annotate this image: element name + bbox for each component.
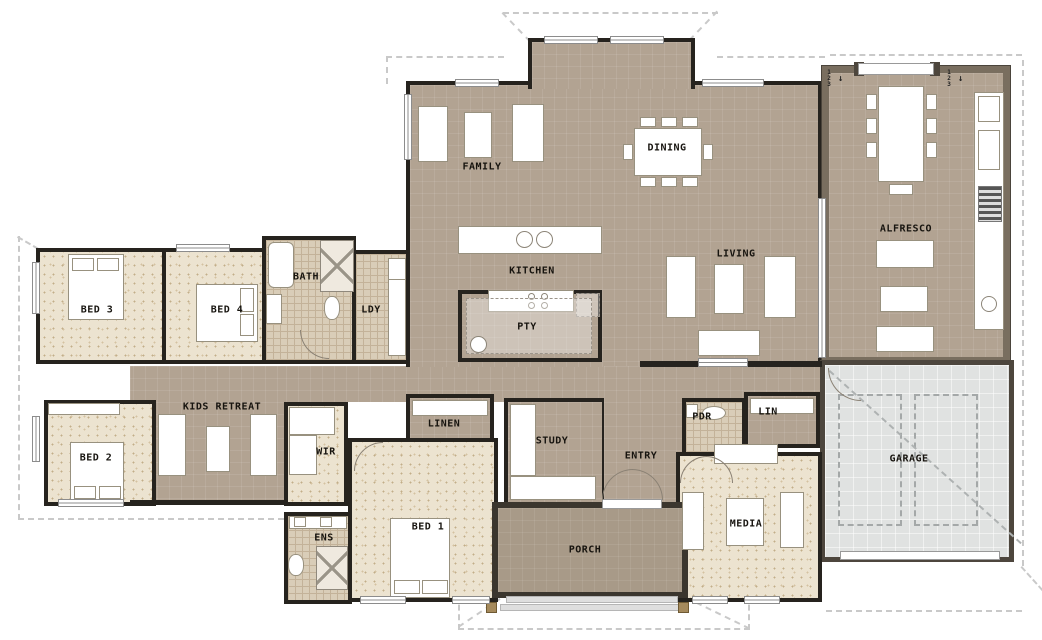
bed2-pillow xyxy=(99,486,121,499)
alfresco-chair xyxy=(866,142,877,158)
porch-post xyxy=(678,602,689,613)
porch-step xyxy=(506,596,678,603)
alfresco-chair xyxy=(926,118,937,134)
bed1-pillow xyxy=(422,580,448,594)
front-door-opening xyxy=(602,499,662,509)
bbq-grill xyxy=(978,186,1002,222)
wall-marker: 1 2 3 xyxy=(824,70,834,88)
dining-chair xyxy=(661,177,677,187)
wir-shelving xyxy=(289,435,317,475)
window xyxy=(698,358,748,367)
media-sofa xyxy=(780,492,804,548)
roofline xyxy=(18,236,20,520)
label-entry: ENTRY xyxy=(625,451,658,462)
window xyxy=(360,596,406,604)
wir-shelving xyxy=(289,407,335,435)
roofline xyxy=(502,12,531,42)
ens-shower xyxy=(316,546,348,590)
roofline xyxy=(386,56,504,58)
glass-stacker-door xyxy=(818,198,826,358)
label-bed4: BED 4 xyxy=(211,305,244,316)
wall-marker-line: 3 xyxy=(944,82,954,88)
alfresco-chair xyxy=(866,118,877,134)
wall-kids-retreat-bottom xyxy=(130,500,288,505)
label-kitchen: KITCHEN xyxy=(509,266,555,277)
pantry-sink xyxy=(470,336,487,353)
label-lin: LIN xyxy=(758,407,778,418)
room-family-bump xyxy=(528,38,695,89)
wall-pantry-bottom xyxy=(458,358,602,362)
window xyxy=(702,79,764,87)
label-bath: BATH xyxy=(293,272,319,283)
media-sofa xyxy=(682,492,704,550)
living-sofa xyxy=(698,330,760,356)
alfresco-chair xyxy=(926,142,937,158)
window xyxy=(32,416,40,462)
study-desk xyxy=(510,404,536,476)
porch-step xyxy=(500,604,682,611)
label-alfresco: ALFRESCO xyxy=(880,224,932,235)
kitchen-sink-bowl xyxy=(536,231,553,248)
alfresco-lounge xyxy=(876,326,934,352)
linen-shelf xyxy=(412,400,488,416)
alfresco-opening xyxy=(858,63,934,75)
label-dining: DINING xyxy=(647,143,686,154)
garage-panel-door xyxy=(840,551,1000,560)
alfresco-chair xyxy=(866,94,877,110)
study-desk xyxy=(510,476,596,500)
wall-marker: 1 2 3 xyxy=(944,70,954,88)
label-ens: ENS xyxy=(314,533,334,544)
bed4-pillow xyxy=(240,314,254,336)
bed2-robe xyxy=(48,403,120,415)
dining-chair xyxy=(661,117,677,127)
kids-sofa xyxy=(158,414,186,476)
dining-chair xyxy=(682,177,698,187)
label-pantry: PTY xyxy=(517,322,537,333)
window xyxy=(610,36,664,44)
dining-chair xyxy=(682,117,698,127)
roofline xyxy=(503,12,718,14)
living-sofa xyxy=(666,256,696,318)
label-media: MEDIA xyxy=(730,519,763,530)
label-porch: PORCH xyxy=(569,545,602,556)
living-armchair xyxy=(714,264,744,314)
bed3-pillow xyxy=(72,258,94,271)
dining-chair xyxy=(703,144,713,160)
family-armchair xyxy=(464,112,492,158)
bbq-sink xyxy=(981,296,997,312)
roofline xyxy=(1021,566,1042,591)
label-kids-retreat: KIDS RETREAT xyxy=(183,402,261,413)
kids-sofa xyxy=(250,414,277,476)
bed1-pillow xyxy=(394,580,420,594)
family-sofa xyxy=(418,106,448,162)
bed2-pillow xyxy=(74,486,96,499)
alfresco-chair xyxy=(889,184,913,195)
label-bed2: BED 2 xyxy=(80,453,113,464)
ens-basin xyxy=(320,517,332,527)
window xyxy=(32,262,40,314)
label-linen: LINEN xyxy=(428,419,461,430)
window xyxy=(404,94,412,160)
media-tv-unit xyxy=(714,444,778,464)
dining-chair xyxy=(640,177,656,187)
alfresco-chair xyxy=(926,94,937,110)
bath-vanity xyxy=(266,294,282,324)
window xyxy=(58,499,124,507)
label-living: LIVING xyxy=(716,249,755,260)
window xyxy=(744,596,780,604)
roofline xyxy=(826,610,1022,612)
label-garage: GARAGE xyxy=(889,454,928,465)
label-bed3: BED 3 xyxy=(81,305,114,316)
label-wir: WIR xyxy=(316,447,336,458)
window xyxy=(455,79,499,87)
bath-shower xyxy=(320,240,354,292)
bath-tub xyxy=(268,242,294,288)
alfresco-table xyxy=(878,86,924,182)
label-family: FAMILY xyxy=(462,162,501,173)
window xyxy=(176,244,230,252)
wall-marker-arrow-icon: ↓ xyxy=(838,74,843,84)
laundry-trough xyxy=(388,258,406,280)
window xyxy=(452,596,490,604)
window xyxy=(692,596,728,604)
roofline xyxy=(386,56,388,84)
roofline xyxy=(689,11,718,41)
wall-marker-line: 3 xyxy=(824,82,834,88)
ens-toilet xyxy=(288,554,304,576)
bath-toilet xyxy=(324,296,340,320)
alfresco-lounge xyxy=(876,240,934,268)
ens-basin xyxy=(294,517,306,527)
bbq-cupboard xyxy=(978,96,1000,122)
label-study: STUDY xyxy=(536,436,569,447)
label-pdr: PDR xyxy=(692,412,712,423)
wall-pantry-left xyxy=(458,290,462,362)
living-sofa xyxy=(764,256,796,318)
roofline xyxy=(1022,60,1024,566)
kitchen-sink-bowl xyxy=(516,231,533,248)
wall-marker-arrow-icon: ↓ xyxy=(958,74,963,84)
bbq-cupboard xyxy=(978,130,1000,170)
label-bed1: BED 1 xyxy=(412,522,445,533)
bed3-pillow xyxy=(97,258,119,271)
alfresco-coffee-table xyxy=(880,286,928,312)
window xyxy=(544,36,598,44)
roofline xyxy=(717,56,825,58)
dining-chair xyxy=(640,117,656,127)
dining-chair xyxy=(623,144,633,160)
roofline xyxy=(18,518,284,520)
roofline xyxy=(830,54,1022,56)
kids-table xyxy=(206,426,230,472)
label-laundry: LDY xyxy=(361,305,381,316)
floor-plan: FAMILY DINING KITCHEN PTY LDY BATH BED 3… xyxy=(0,0,1042,640)
family-sofa xyxy=(512,104,544,162)
